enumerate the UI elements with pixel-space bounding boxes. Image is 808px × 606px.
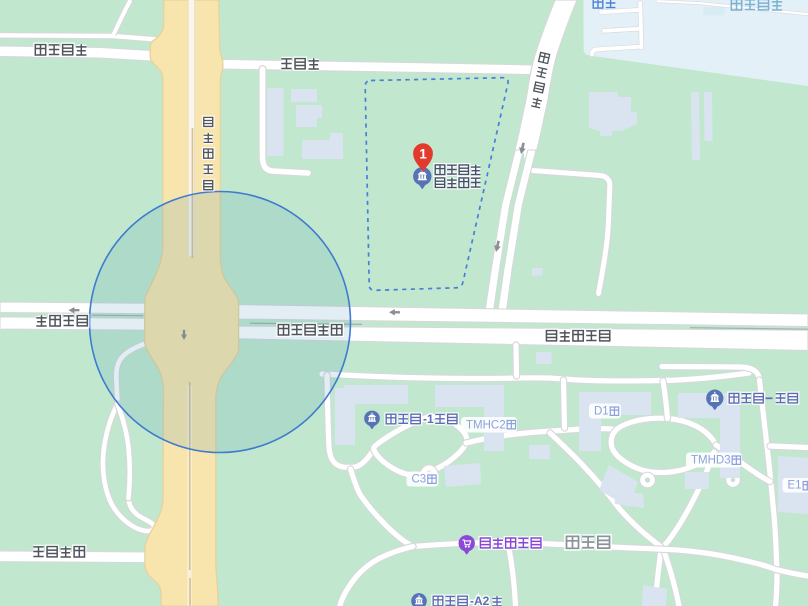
svg-text:D1: D1 [594, 406, 609, 418]
svg-text:-A2: -A2 [470, 594, 490, 606]
svg-text:E1: E1 [788, 480, 802, 492]
svg-text:TMHC2: TMHC2 [466, 420, 506, 432]
svg-text:1: 1 [419, 147, 427, 162]
svg-text:-1: -1 [423, 412, 434, 426]
svg-text:C3: C3 [412, 474, 427, 486]
svg-text:TMHD3: TMHD3 [691, 455, 731, 467]
